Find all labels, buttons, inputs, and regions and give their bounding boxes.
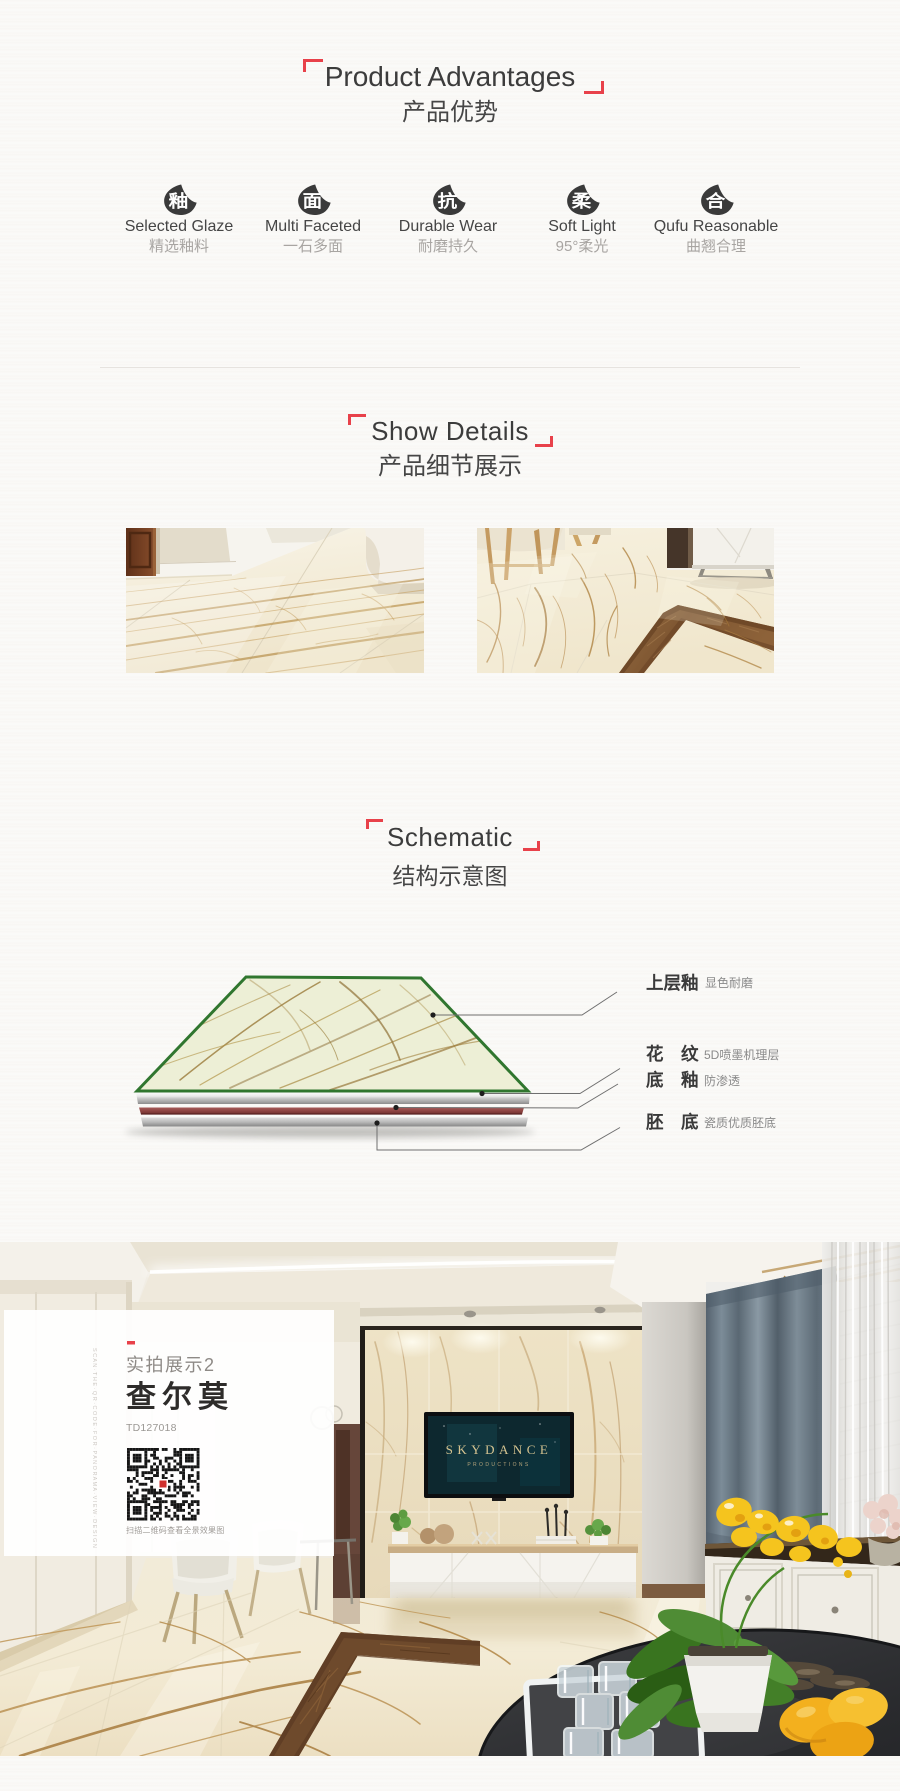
- svg-text:S C A N · T H E · Q R · C O D: S C A N · T H E · Q R · C O D E · F O R …: [91, 1348, 97, 1548]
- svg-text:抗: 抗: [437, 192, 457, 211]
- svg-text:显色耐磨: 显色耐磨: [705, 976, 753, 990]
- svg-text:瓷质优质胚底: 瓷质优质胚底: [704, 1115, 776, 1130]
- svg-text:TD127018: TD127018: [126, 1422, 177, 1434]
- svg-text:底: 底: [681, 1112, 699, 1132]
- svg-text:面: 面: [302, 192, 322, 211]
- svg-text:合: 合: [705, 192, 725, 211]
- svg-text:上层釉: 上层釉: [646, 973, 699, 993]
- svg-text:釉: 釉: [168, 192, 188, 211]
- svg-text:5D喷墨机理层: 5D喷墨机理层: [704, 1048, 779, 1062]
- svg-text:柔: 柔: [571, 192, 591, 211]
- svg-text:防渗透: 防渗透: [704, 1073, 740, 1088]
- svg-text:扫描二维码查看全景效果图: 扫描二维码查看全景效果图: [126, 1525, 224, 1535]
- svg-text:釉: 釉: [681, 1070, 699, 1090]
- svg-text:胚: 胚: [646, 1112, 664, 1132]
- svg-text:花: 花: [646, 1044, 664, 1064]
- svg-text:底: 底: [646, 1070, 664, 1090]
- svg-text:SKYDANCE: SKYDANCE: [446, 1442, 553, 1457]
- svg-text:实拍展示2: 实拍展示2: [126, 1355, 216, 1375]
- svg-text:查尔莫: 查尔莫: [126, 1381, 234, 1414]
- svg-text:PRODUCTIONS: PRODUCTIONS: [467, 1462, 530, 1468]
- svg-text:纹: 纹: [681, 1044, 699, 1064]
